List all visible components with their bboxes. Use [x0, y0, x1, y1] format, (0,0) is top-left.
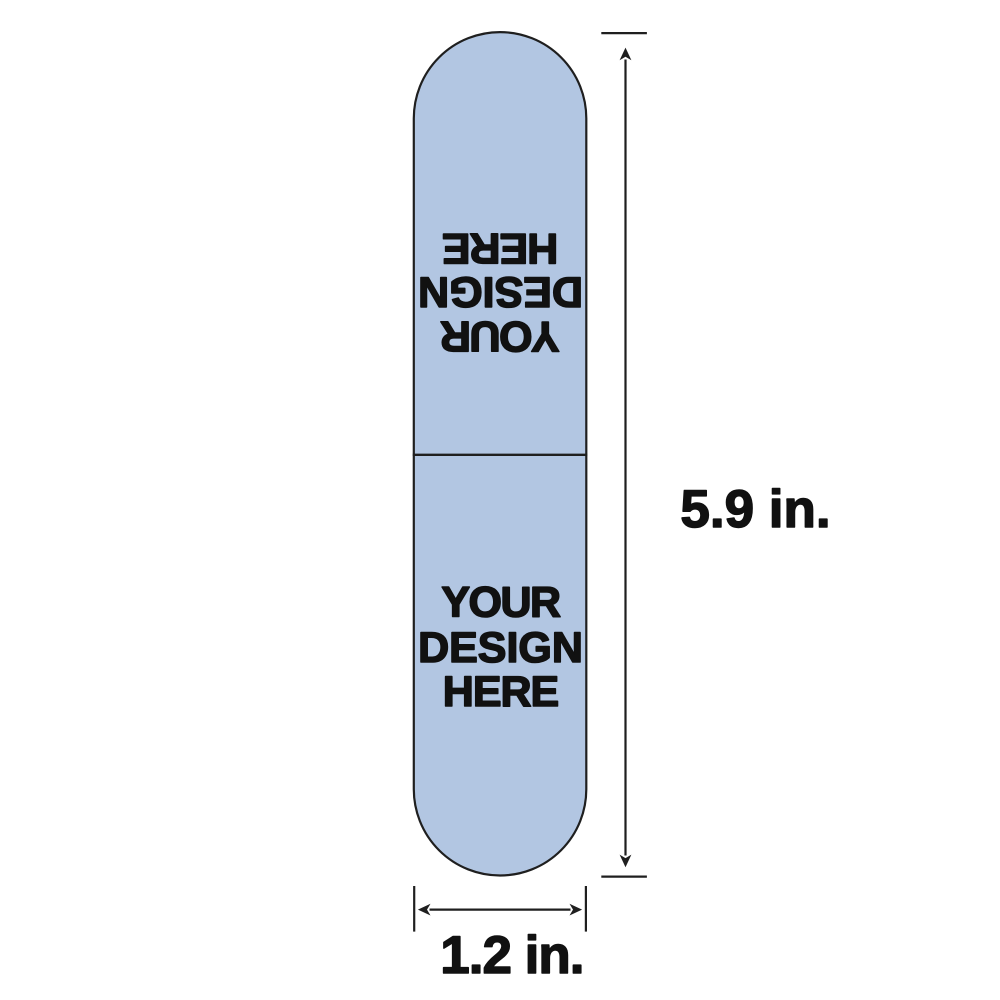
svg-text:HERE: HERE	[443, 668, 558, 716]
svg-text:1.2 in.: 1.2 in.	[440, 926, 583, 985]
svg-text:5.9 in.: 5.9 in.	[680, 480, 830, 539]
svg-text:DESIGN: DESIGN	[418, 624, 583, 672]
svg-text:HERE: HERE	[443, 224, 558, 272]
svg-text:YOUR: YOUR	[440, 312, 560, 360]
svg-text:YOUR: YOUR	[441, 579, 561, 627]
svg-text:DESIGN: DESIGN	[418, 268, 583, 316]
